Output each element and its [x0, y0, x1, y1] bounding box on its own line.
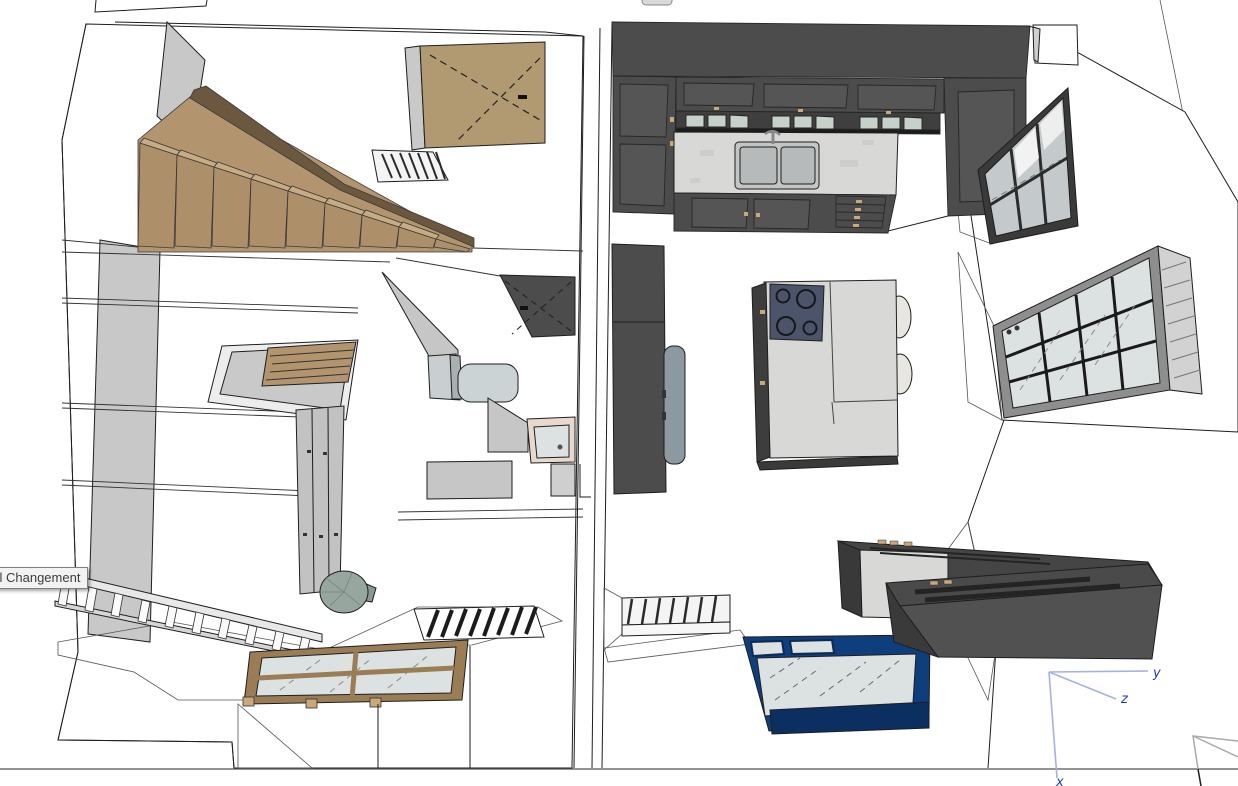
cabinet-panel	[764, 84, 848, 108]
fridge-column[interactable]	[612, 244, 685, 494]
cabinet-crown	[612, 22, 1030, 78]
door-pane	[751, 641, 784, 656]
wood-glass-panel[interactable]	[243, 640, 468, 708]
floor-shade	[604, 588, 622, 650]
wall-corner	[580, 464, 591, 497]
cooktop[interactable]	[770, 284, 824, 341]
fridge-handle	[662, 412, 666, 420]
kitchen	[604, 0, 1238, 768]
cabinet-panel	[858, 85, 936, 110]
sink-basin	[781, 147, 815, 184]
blue-glass-door[interactable]	[743, 635, 930, 734]
door-handle	[520, 306, 528, 310]
stair-riser	[212, 167, 251, 248]
bathroom-sink[interactable]	[527, 417, 575, 463]
3d-viewport[interactable]: y z x til Changement	[0, 0, 1238, 786]
corner-wireframe	[1193, 736, 1238, 786]
outer-wall-corner	[95, 0, 207, 12]
model-scene[interactable]: y z x	[0, 0, 1238, 786]
stair-riser	[175, 155, 214, 248]
y-axis-line	[1049, 671, 1148, 672]
z-axis-line	[1049, 672, 1116, 699]
stair-riser	[138, 143, 177, 248]
door-handle	[518, 95, 527, 99]
cabinet-panel	[754, 199, 810, 229]
bathroom-partition	[427, 461, 512, 499]
sink-basin	[740, 147, 777, 184]
fridge-door	[664, 346, 685, 464]
floor-line	[888, 216, 948, 231]
axis-gizmo: y z x	[1049, 666, 1161, 786]
tool-tooltip: til Changement	[0, 567, 88, 589]
y-axis-label: y	[1152, 666, 1161, 681]
cabinet-panel	[620, 144, 666, 206]
bathroom-cabinet[interactable]	[551, 464, 575, 496]
wood-door[interactable]	[405, 42, 545, 150]
sideboard-end-dark	[838, 541, 862, 617]
kitchen-counter[interactable]	[674, 131, 898, 195]
cabinet-panel	[692, 198, 748, 228]
wall-box	[1033, 25, 1078, 65]
sink-basin	[534, 425, 569, 458]
kitchen-base-cabinets[interactable]	[674, 193, 948, 233]
hall-radiator[interactable]	[372, 150, 448, 182]
clipped-object	[642, 0, 672, 5]
kitchen-radiator[interactable]	[622, 595, 730, 636]
toilet-bowl	[458, 364, 518, 402]
x-axis-label: x	[1055, 775, 1064, 786]
x-axis-line	[1049, 672, 1057, 778]
kitchen-island[interactable]	[752, 280, 912, 470]
z-axis-label: z	[1120, 692, 1129, 707]
cabinet-panel	[684, 83, 754, 106]
fridge-handle	[662, 390, 666, 398]
axis-lines	[1049, 671, 1148, 778]
cabinet-panel	[620, 84, 668, 137]
door-pane	[790, 640, 834, 654]
sink-faucet	[558, 445, 563, 450]
closet-doors[interactable]	[296, 406, 344, 594]
radiator-front	[622, 622, 730, 636]
floor-grate[interactable]	[414, 606, 544, 640]
